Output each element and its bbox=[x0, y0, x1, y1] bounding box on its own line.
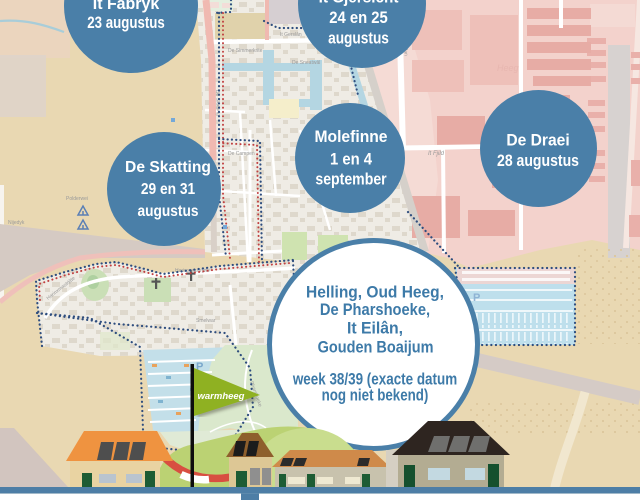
svg-text:It Fabryk: It Fabryk bbox=[93, 0, 160, 13]
svg-text:De Simmerkrite: De Simmerkrite bbox=[228, 48, 263, 54]
svg-text:It Gerslân: It Gerslân bbox=[280, 32, 302, 38]
svg-text:De Sneatwâl: De Sneatwâl bbox=[292, 60, 320, 66]
svg-text:warmheeg: warmheeg bbox=[198, 391, 245, 402]
svg-text:september: september bbox=[315, 170, 386, 189]
svg-text:Molefinne: Molefinne bbox=[314, 128, 387, 147]
svg-text:It Fjild: It Fjild bbox=[428, 151, 445, 157]
svg-text:Smelwar: Smelwar bbox=[196, 318, 216, 324]
svg-text:24 en 25: 24 en 25 bbox=[329, 9, 388, 27]
svg-text:nog niet bekend): nog niet bekend) bbox=[322, 386, 429, 405]
svg-text:Helling, Oud Heeg,: Helling, Oud Heeg, bbox=[306, 283, 444, 302]
svg-text:De Draei: De Draei bbox=[506, 131, 569, 150]
svg-text:It Eilân,: It Eilân, bbox=[347, 319, 403, 338]
svg-text:Heeg: Heeg bbox=[497, 63, 519, 73]
svg-text:Harinxmastrjitte: Harinxmastrjitte bbox=[175, 268, 210, 274]
svg-text:De Skatting: De Skatting bbox=[125, 159, 211, 176]
svg-text:Polderwei: Polderwei bbox=[66, 196, 88, 202]
svg-text:It Gjersicht: It Gjersicht bbox=[319, 0, 399, 7]
svg-text:29 en 31: 29 en 31 bbox=[141, 182, 195, 199]
svg-text:De Pharshoeke,: De Pharshoeke, bbox=[320, 301, 430, 319]
svg-text:augustus: augustus bbox=[138, 203, 199, 220]
svg-text:Nijedyk: Nijedyk bbox=[8, 220, 25, 226]
svg-text:P: P bbox=[473, 292, 480, 304]
svg-text:De Campen: De Campen bbox=[228, 151, 255, 157]
svg-text:1 en 4: 1 en 4 bbox=[330, 151, 372, 169]
svg-text:28 augustus: 28 augustus bbox=[497, 152, 579, 171]
svg-text:augustus: augustus bbox=[328, 29, 389, 48]
svg-text:23 augustus: 23 augustus bbox=[87, 14, 165, 33]
svg-text:Gouden Boaijum: Gouden Boaijum bbox=[318, 339, 434, 357]
